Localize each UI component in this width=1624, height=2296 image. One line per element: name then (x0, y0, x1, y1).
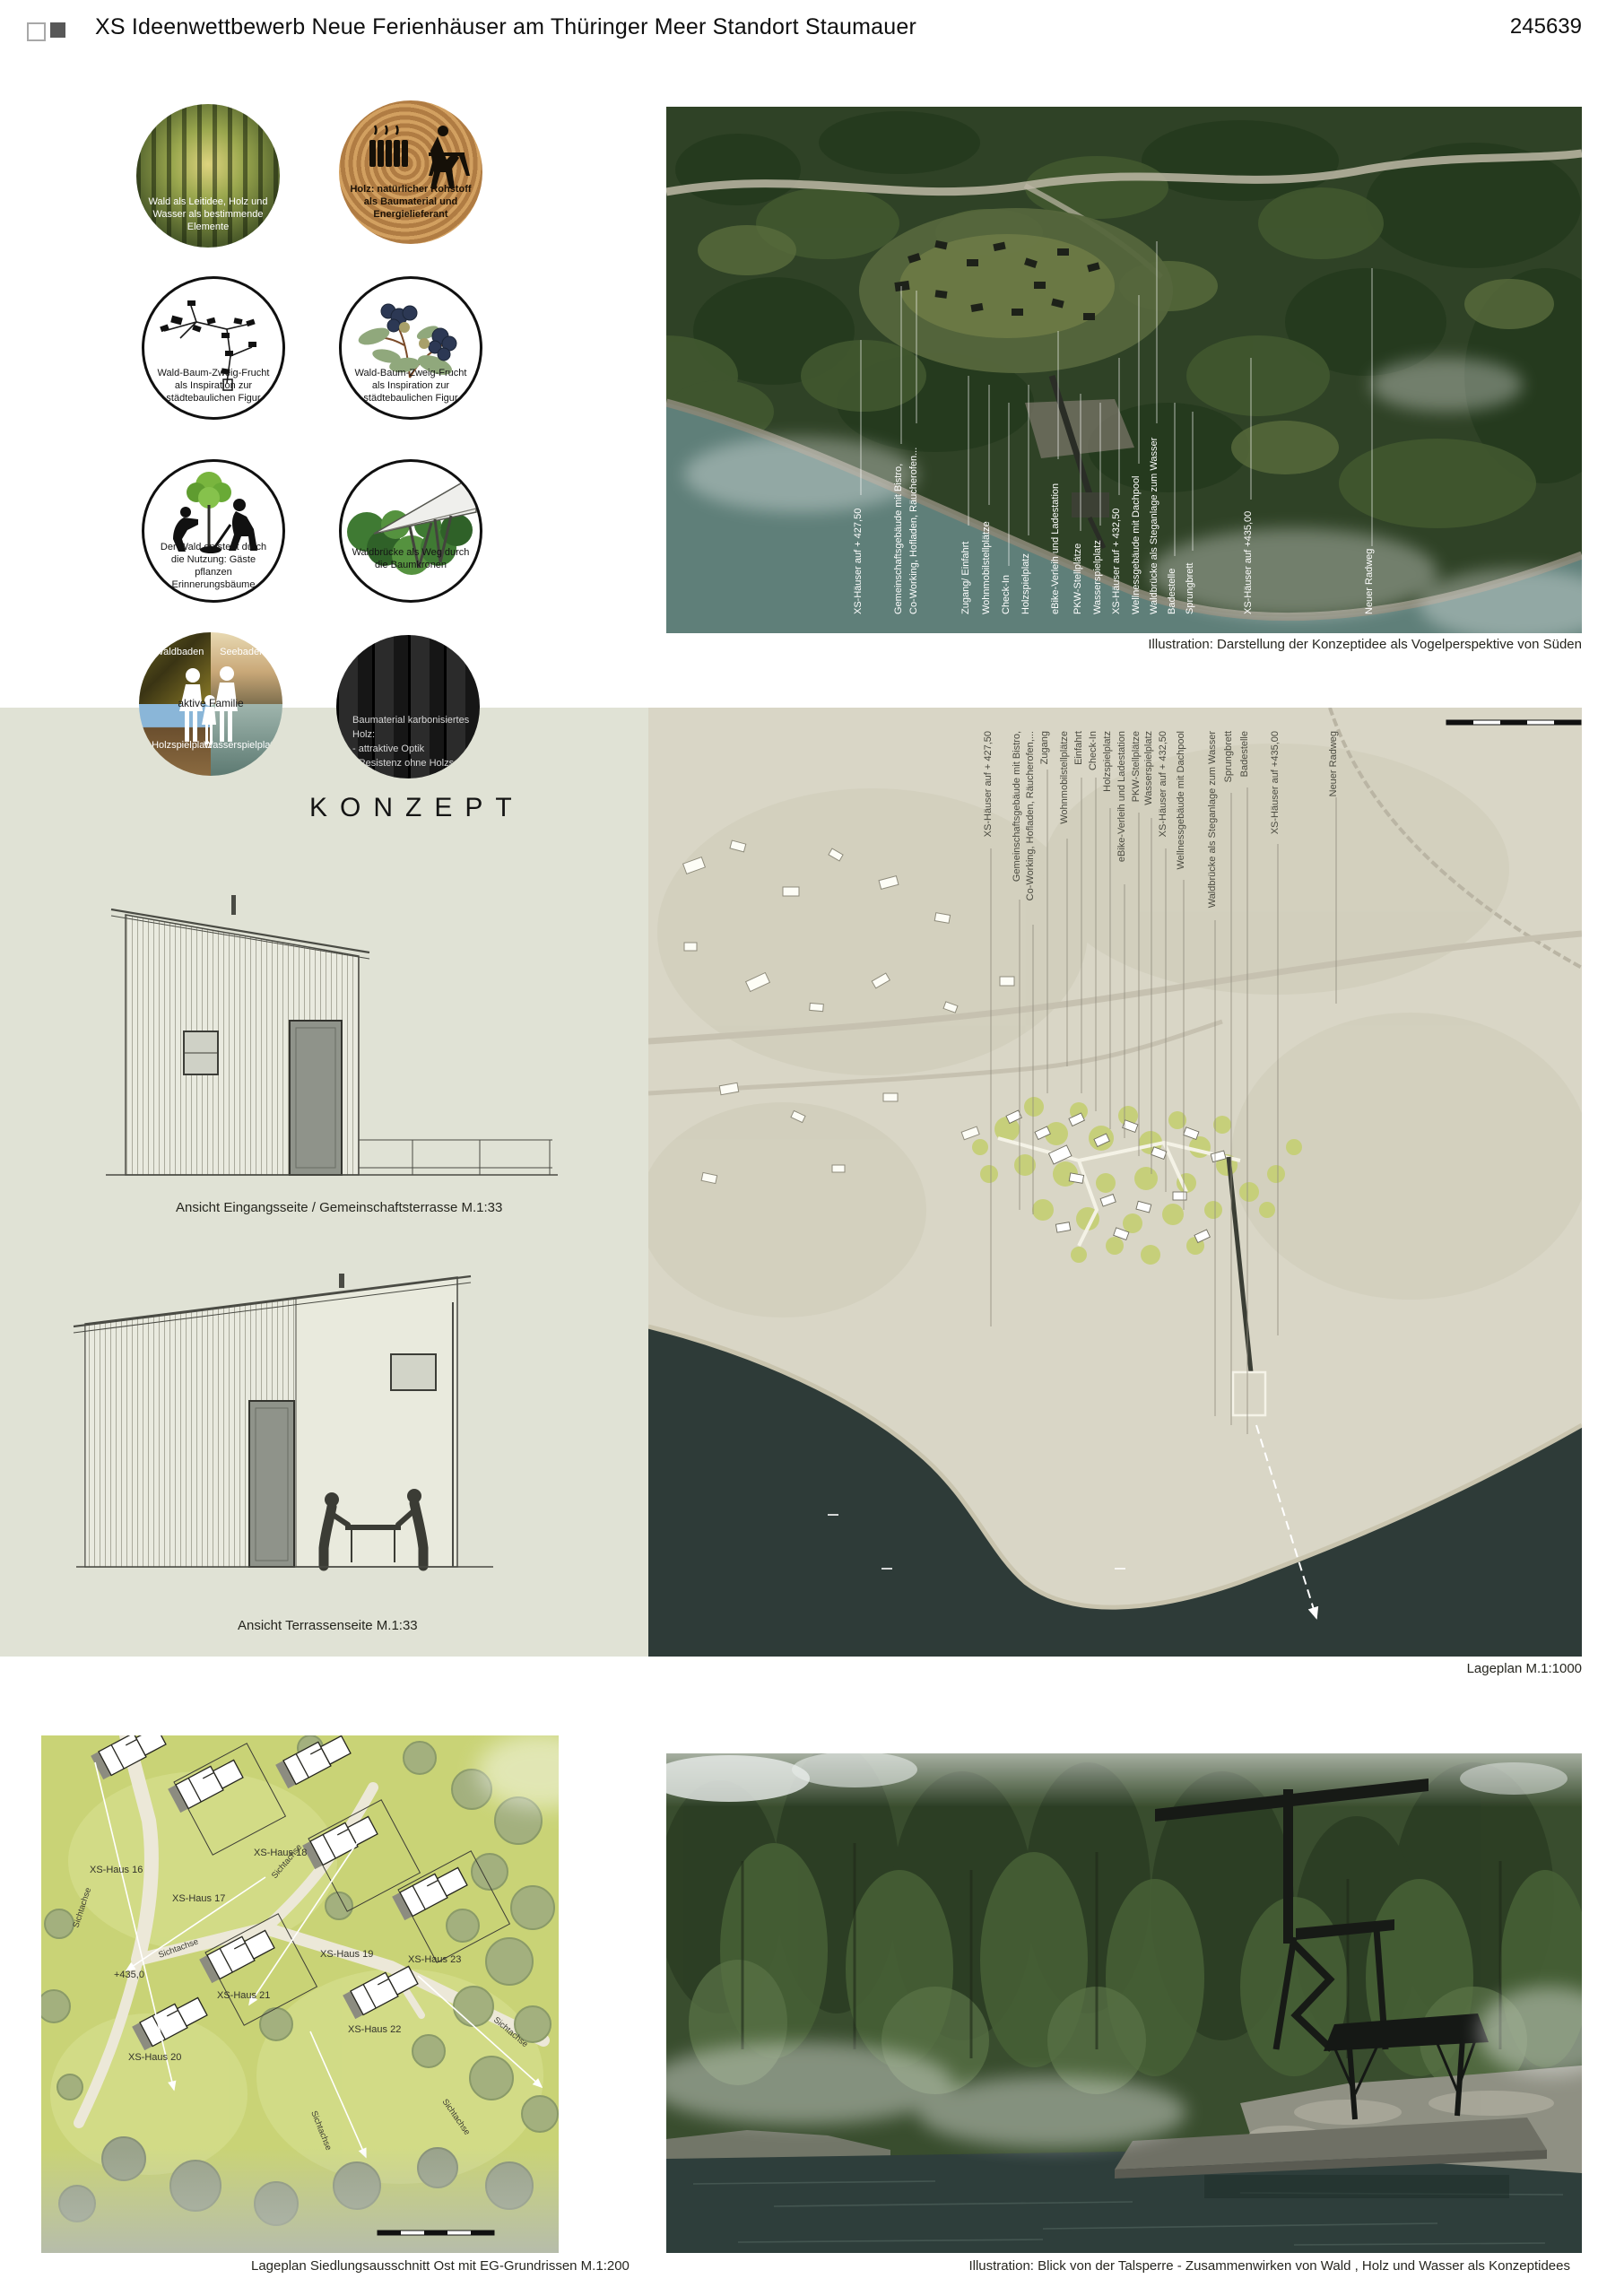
plan-label: PKW-Stellplätze (1073, 544, 1083, 614)
concept-icon-settlement-figure: Wald-Baum-Zweig-Frucht als Inspiration z… (142, 276, 285, 420)
perspective-caption: Illustration: Blick von der Talsperre - … (968, 2258, 1570, 2274)
wood-icon-art (339, 100, 482, 244)
plan-label: Check-In (1088, 731, 1099, 770)
plan-label: Waldbrücke als Steganlage zum Wasser (1149, 437, 1159, 614)
heat-waves-icon (375, 126, 398, 135)
quad-label-center: aktive Familie (178, 697, 243, 709)
plan-label: Neuer Radweg (1364, 549, 1375, 614)
plan-label: Zugang/ Einfahrt (960, 542, 971, 614)
marker-square-filled (50, 22, 65, 38)
scale-bar (1446, 720, 1581, 725)
concept-icon-carbonized-wood: Baumaterial karbonisiertes Holz: - attra… (336, 635, 480, 778)
quad-label-seebaden: Seebaden (220, 647, 265, 657)
roof-vent (231, 895, 236, 915)
scale-bar (378, 2231, 494, 2235)
plan-label: Wasserspielplatz (1143, 731, 1154, 805)
level-label: +435,0 (114, 1970, 144, 1980)
plan-label: XS-Häuser auf +435,00 (1243, 511, 1254, 614)
plan-label: Wasserspielplatz (1092, 540, 1103, 614)
plan-label: Badestelle (1167, 569, 1177, 614)
elevation-terrace-drawing (72, 1266, 520, 1600)
circle-caption: Wald als Leitidee, Holz und Wasser als b… (146, 196, 270, 233)
house-label: XS-Haus 16 (90, 1865, 143, 1875)
quad-label-waldbaden: Waldbaden (154, 647, 204, 657)
plan-label: Co-Working, Hofladen, Räucherofen,... (1025, 731, 1036, 900)
dam-structure (1025, 399, 1134, 458)
house-label: XS-Haus 18 (254, 1848, 307, 1858)
plan-label: eBike-Verleih und Ladestation (1116, 731, 1127, 862)
house-label: XS-Haus 19 (320, 1949, 373, 1960)
plan-label: Wellnessgebäude mit Dachpool (1176, 731, 1186, 870)
clearing-light (899, 234, 1115, 338)
door (290, 1021, 342, 1175)
plan-label: Einfahrt (1073, 731, 1084, 765)
siteplan-drawing: XS-Häuser auf + 427,50 Gemeinschaftsgebä… (648, 708, 1582, 1657)
elevation-terrace-caption: Ansicht Terrassenseite M.1:33 (238, 1618, 418, 1633)
siteplan-caption: Lageplan M.1:1000 (1467, 1661, 1582, 1676)
plan-label: Wellnessgebäude mit Dachpool (1131, 476, 1142, 615)
plan-label: Holzspielplatz (1020, 553, 1031, 614)
entry-code: 245639 (1510, 14, 1582, 39)
marker-square-outline (27, 22, 46, 41)
plan-label: Badestelle (1239, 731, 1250, 777)
concept-icon-forest-bridge: Waldbrücke als Weg durch die Baumkronen (339, 459, 482, 603)
perspective-illustration (666, 1753, 1582, 2253)
plan-label: Gemeinschaftsgebäude mit Bistro, (1012, 731, 1022, 882)
plan-label: Sprungbrett (1223, 731, 1234, 782)
circle-caption: Wald-Baum-Zweig-Frucht als Inspiration z… (154, 367, 273, 404)
plan-label: Zugang (1039, 731, 1050, 764)
terrace-railing (359, 1140, 552, 1175)
concept-icon-blueberries: Wald-Baum-Zweig-Frucht als Inspiration z… (339, 276, 482, 420)
concept-icon-forest: Wald als Leitidee, Holz und Wasser als b… (136, 104, 280, 248)
concept-heading: KONZEPT (309, 793, 525, 823)
plan-label: Wohnmobilstellplätze (981, 521, 992, 614)
aerial-caption: Illustration: Darstellung der Konzeptide… (1148, 637, 1582, 652)
caption-line: Baumaterial karbonisiertes Holz: (352, 714, 480, 743)
concept-icon-tree-planting: Der Wald entsteht durch die Nutzung: Gäs… (142, 459, 285, 603)
concept-icon-active-family: Waldbaden Seebaden Holzspielplatz Wasser… (139, 632, 282, 776)
house-label: XS-Haus 20 (128, 2052, 181, 2063)
plan-label: PKW-Stellplätze (1131, 731, 1142, 802)
plan-label: Waldbrücke als Steganlage zum Wasser (1207, 731, 1218, 909)
plan-label: XS-Häuser auf + 427,50 (983, 731, 994, 837)
roof-vent (339, 1274, 344, 1288)
plan-label: XS-Häuser auf + 432,50 (1111, 509, 1122, 614)
circle-caption: Der Wald entsteht durch die Nutzung: Gäs… (154, 541, 273, 591)
circle-caption-block: Baumaterial karbonisiertes Holz: - attra… (352, 714, 480, 771)
house-label: XS-Haus 17 (172, 1893, 225, 1904)
plan-label: Gemeinschaftsgebäude mit Bistro, (893, 464, 904, 614)
circle-caption: Waldbrücke als Weg durch die Baumkronen (352, 546, 470, 571)
radiator-icon (369, 140, 408, 167)
plan-label: Holzspielplatz (1102, 731, 1113, 792)
plan-label: XS-Häuser auf + 427,50 (853, 509, 864, 614)
plan-label: Co-Working, Hofladen, Räucherofen... (908, 448, 919, 614)
plan-label: XS-Häuser auf + 432,50 (1158, 731, 1168, 837)
detailplan-drawing: Sichtachse Sichtachse Sichtachse Sichtac… (41, 1735, 559, 2253)
house-label: XS-Haus 21 (217, 1990, 270, 2001)
house-label: XS-Haus 22 (348, 2024, 401, 2035)
aerial-illustration: XS-Häuser auf + 427,50 Gemeinschaftsgebä… (666, 107, 1582, 633)
window (391, 1354, 436, 1390)
tree (187, 472, 231, 548)
plan-label: eBike-Verleih und Ladestation (1050, 483, 1061, 614)
elevation-entrance-drawing (99, 870, 565, 1211)
caption-line: - Resistenz ohne Holzschutz (352, 757, 480, 771)
competition-board: XS Ideenwettbewerb Neue Ferienhäuser am … (0, 0, 1624, 2296)
elevation-entrance-caption: Ansicht Eingangsseite / Gemeinschaftster… (176, 1200, 502, 1215)
plan-label: Wohnmobilstellplätze (1059, 731, 1070, 824)
plan-label: Neuer Radweg (1328, 731, 1339, 796)
circle-caption: Wald-Baum-Zweig-Frucht als Inspiration z… (352, 367, 470, 404)
plan-label: Check-In (1001, 575, 1012, 614)
quad-label-wasserspielplatz: Wasserspielplatz (204, 740, 278, 751)
caption-line: - attraktive Optik (352, 743, 480, 757)
bridge-art (342, 462, 480, 600)
bathing-platform (1072, 492, 1109, 517)
detailplan-caption: Lageplan Siedlungsausschnitt Ost mit EG-… (251, 2258, 630, 2274)
page-title: XS Ideenwettbewerb Neue Ferienhäuser am … (95, 14, 916, 40)
carpenter-icon (429, 126, 470, 188)
plan-label: Sprungbrett (1185, 563, 1195, 614)
mist-band (41, 2148, 559, 2253)
house-label: XS-Haus 23 (408, 1954, 461, 1965)
plan-label: XS-Häuser auf +435,00 (1270, 731, 1281, 834)
concept-icon-wood-resource: Holz: natürlicher Rohstoff als Baumateri… (339, 100, 482, 244)
circle-caption: Holz: natürlicher Rohstoff als Baumateri… (349, 183, 473, 221)
